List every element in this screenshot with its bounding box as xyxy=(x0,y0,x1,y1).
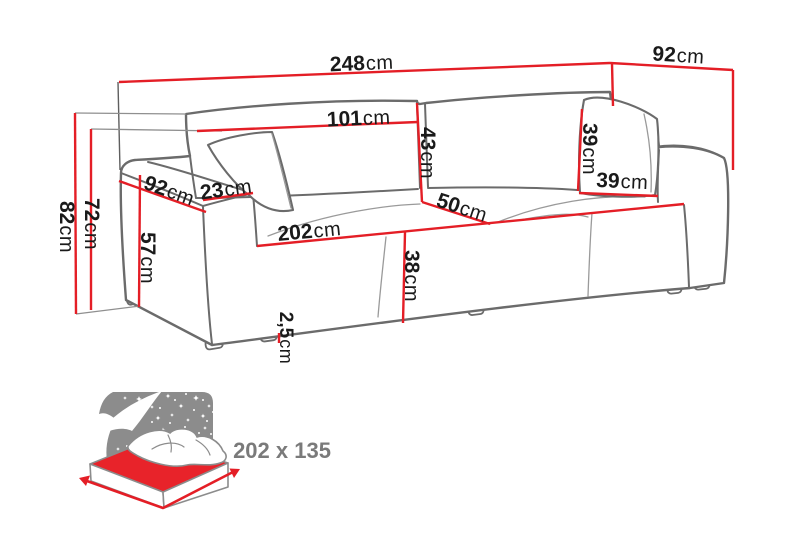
dim-back-cushion-height-label: 43cm xyxy=(416,127,439,179)
dim-total-depth-label: 92cm xyxy=(652,42,705,68)
tick-height-total-top xyxy=(75,113,186,114)
sofa-dimension-diagram: 248cm 92cm 101cm 43cm 39cm 39cm 92cm 23c… xyxy=(0,0,800,533)
dim-arm-height-label: 57cm xyxy=(136,232,159,284)
dim-line-corner-drop xyxy=(612,63,613,106)
dim-leg-height-label: 2,5cm xyxy=(275,312,296,364)
dim-total-width-label: 248cm xyxy=(329,51,394,77)
dim-height-back-label: 72cm xyxy=(80,198,103,250)
dim-back-cushion-width-label: 101cm xyxy=(326,106,391,132)
sleeping-function-icon: 202 x 135 xyxy=(79,391,331,508)
dim-pillow-width-label: 39cm xyxy=(596,169,649,194)
sleeping-area-size-label: 202 x 135 xyxy=(233,438,331,463)
diagram-canvas: 248cm 92cm 101cm 43cm 39cm 39cm 92cm 23c… xyxy=(0,0,800,533)
dim-seat-height-label: 38cm xyxy=(400,250,423,302)
tick-height-bottom xyxy=(76,306,140,314)
dim-height-total-label: 82cm xyxy=(55,201,78,253)
ext-line-width-left xyxy=(118,82,120,170)
dim-pillow-height-label: 39cm xyxy=(578,123,601,175)
